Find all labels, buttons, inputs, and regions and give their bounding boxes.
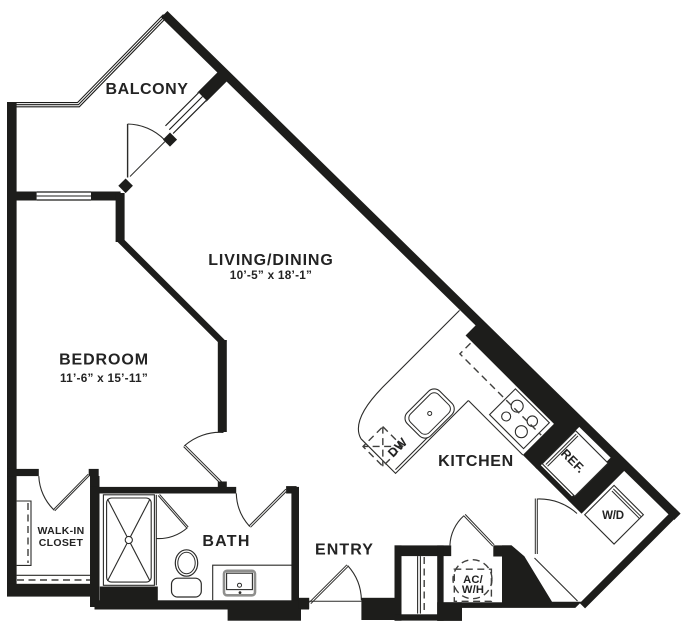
- svg-text:11’-6” x 15’-11”: 11’-6” x 15’-11”: [60, 371, 148, 385]
- svg-text:W/H: W/H: [462, 584, 484, 596]
- svg-text:LIVING/DINING: LIVING/DINING: [208, 252, 333, 269]
- svg-text:CLOSET: CLOSET: [39, 537, 84, 549]
- svg-text:ENTRY: ENTRY: [315, 542, 374, 559]
- svg-text:WALK-IN: WALK-IN: [37, 525, 84, 537]
- svg-text:BALCONY: BALCONY: [106, 81, 189, 98]
- svg-text:W/D: W/D: [602, 510, 624, 522]
- svg-text:KITCHEN: KITCHEN: [438, 453, 514, 470]
- svg-text:BATH: BATH: [202, 533, 250, 550]
- svg-text:10’-5” x 18’-1”: 10’-5” x 18’-1”: [230, 268, 312, 282]
- svg-text:BEDROOM: BEDROOM: [59, 352, 149, 369]
